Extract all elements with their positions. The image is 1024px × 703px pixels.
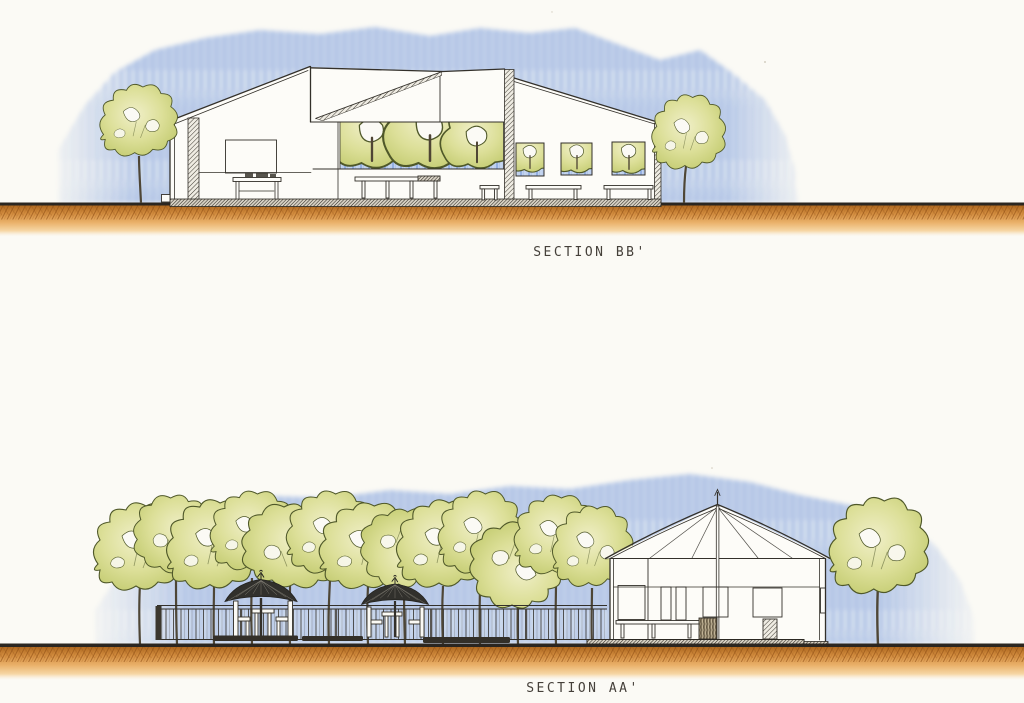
section-bb-caption: SECTION BB': [533, 245, 647, 260]
architectural-sheet: SECTION BB': [0, 0, 1024, 703]
floor-slab: [170, 199, 661, 207]
plinth: [162, 195, 171, 203]
section-aa-drawing: SECTION AA': [0, 474, 1024, 696]
tent-pier-2: [763, 619, 777, 639]
cut-wall-mid: [505, 70, 515, 203]
section-aa-caption: SECTION AA': [526, 681, 640, 696]
tent-pier-1: [699, 618, 717, 639]
ground-top: [0, 203, 1024, 237]
cut-wall-left: [188, 118, 199, 202]
ground-bottom: [0, 644, 1024, 681]
